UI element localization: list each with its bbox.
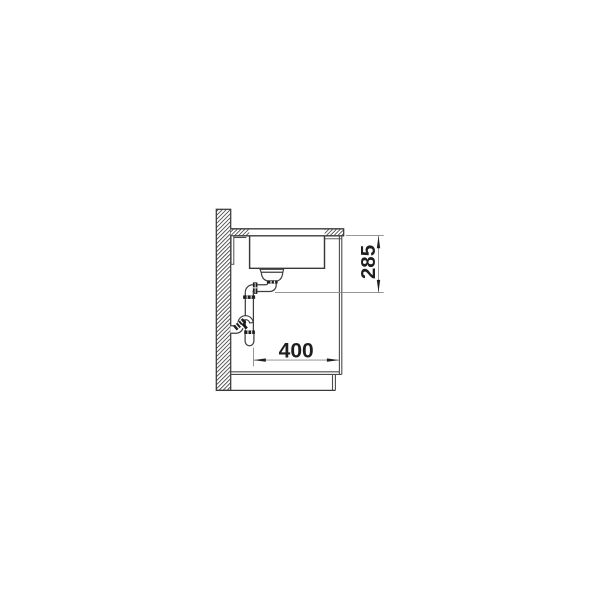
svg-text:400: 400 <box>279 339 314 362</box>
svg-text:285: 285 <box>357 245 380 279</box>
